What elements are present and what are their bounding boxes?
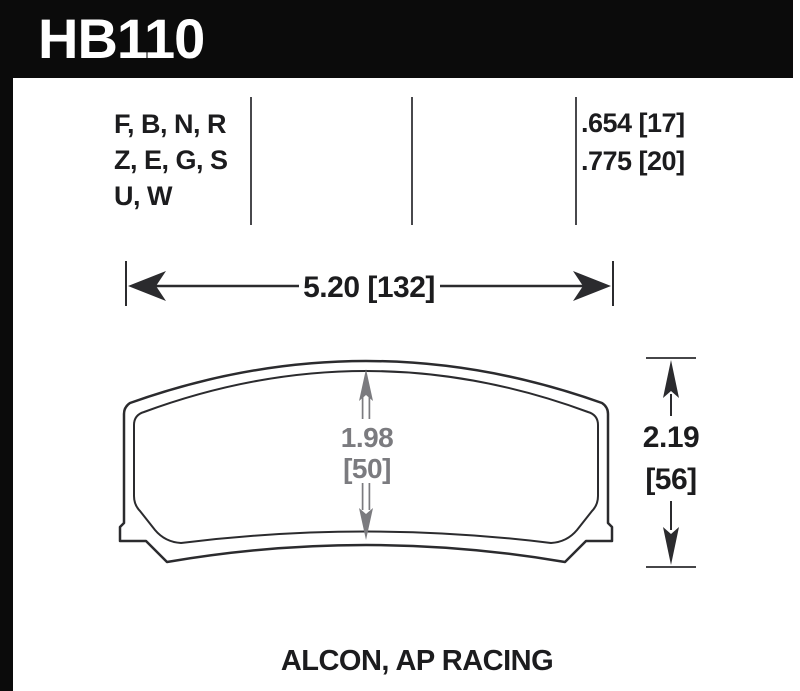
- diagram-page: HB110 F, B, N, R Z, E, G, S U, W .654 [1…: [0, 0, 800, 691]
- caliper-applications-label: ALCON, AP RACING: [0, 645, 800, 678]
- down-arrowhead-icon: [663, 527, 679, 565]
- width-dimension-label: 5.20 [132]: [303, 271, 435, 304]
- overall-height-inches-label: 2.19: [643, 421, 699, 454]
- center-height-mm-label: [50]: [343, 453, 391, 484]
- up-arrowhead-icon: [663, 360, 679, 398]
- brake-pad-drawing: 5.20 [132] 1.98 [50] 2.19 [56]: [0, 0, 800, 691]
- center-height-inches-label: 1.98: [341, 422, 394, 453]
- overall-height-mm-label: [56]: [645, 463, 696, 496]
